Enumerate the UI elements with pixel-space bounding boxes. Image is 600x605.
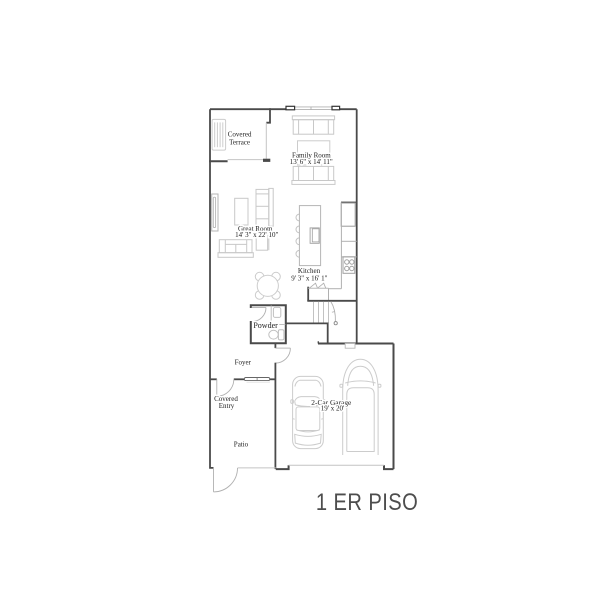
svg-text:Covered: Covered xyxy=(228,130,252,138)
svg-text:13' 6" x 14' 11": 13' 6" x 14' 11" xyxy=(290,158,333,166)
svg-text:14' 3" x 22' 10": 14' 3" x 22' 10" xyxy=(235,231,278,239)
svg-text:9' 3" x 16' 1": 9' 3" x 16' 1" xyxy=(291,274,327,282)
svg-text:19' x 20': 19' x 20' xyxy=(321,404,345,412)
svg-text:Patio: Patio xyxy=(234,440,249,448)
svg-text:Powder: Powder xyxy=(253,321,278,330)
svg-text:1 ER PISO: 1 ER PISO xyxy=(316,488,418,515)
svg-text:Terrace: Terrace xyxy=(229,139,250,147)
svg-text:Entry: Entry xyxy=(219,402,235,410)
svg-text:Foyer: Foyer xyxy=(235,359,252,367)
